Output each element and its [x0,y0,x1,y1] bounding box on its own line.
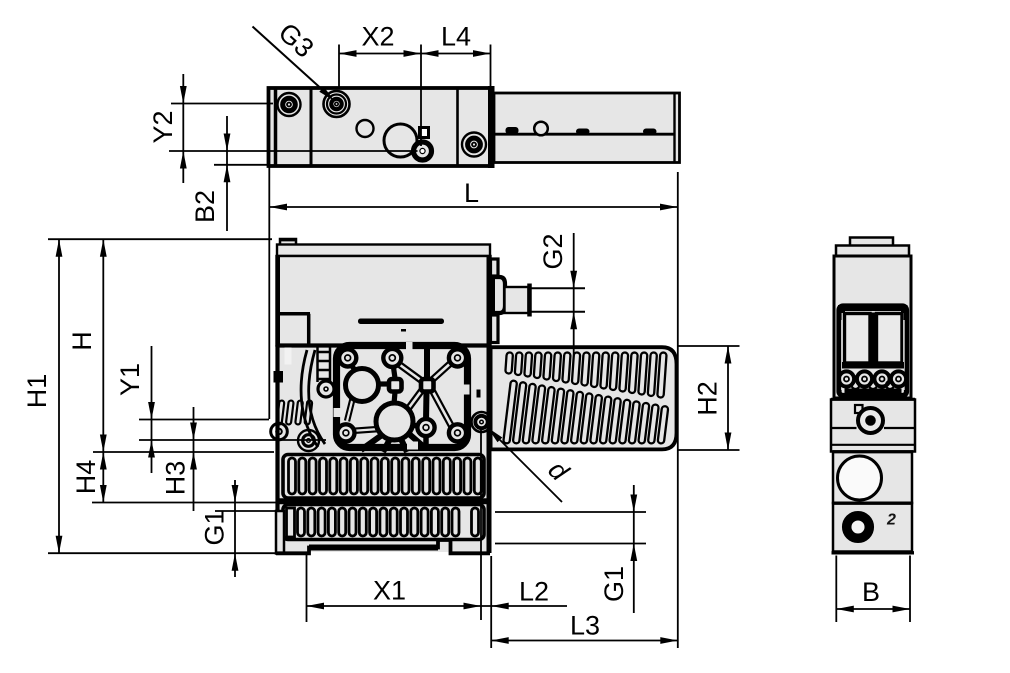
svg-text:H: H [67,331,97,351]
svg-text:L2: L2 [519,577,549,607]
svg-text:B: B [862,577,880,607]
svg-text:G2: G2 [538,233,568,269]
svg-text:G1: G1 [599,566,629,602]
svg-text:H4: H4 [71,460,101,495]
svg-text:X2: X2 [361,22,394,52]
svg-text:X1: X1 [373,576,406,606]
svg-text:G1: G1 [200,509,230,545]
svg-text:Y2: Y2 [148,110,178,143]
svg-text:2: 2 [886,512,896,529]
svg-text:H3: H3 [161,461,191,496]
svg-text:H1: H1 [22,374,52,409]
svg-text:Y1: Y1 [115,363,145,396]
svg-text:L: L [464,178,479,208]
svg-text:H2: H2 [693,381,723,416]
svg-text:L4: L4 [441,22,471,52]
svg-text:B2: B2 [190,190,220,223]
svg-text:L3: L3 [570,611,600,641]
